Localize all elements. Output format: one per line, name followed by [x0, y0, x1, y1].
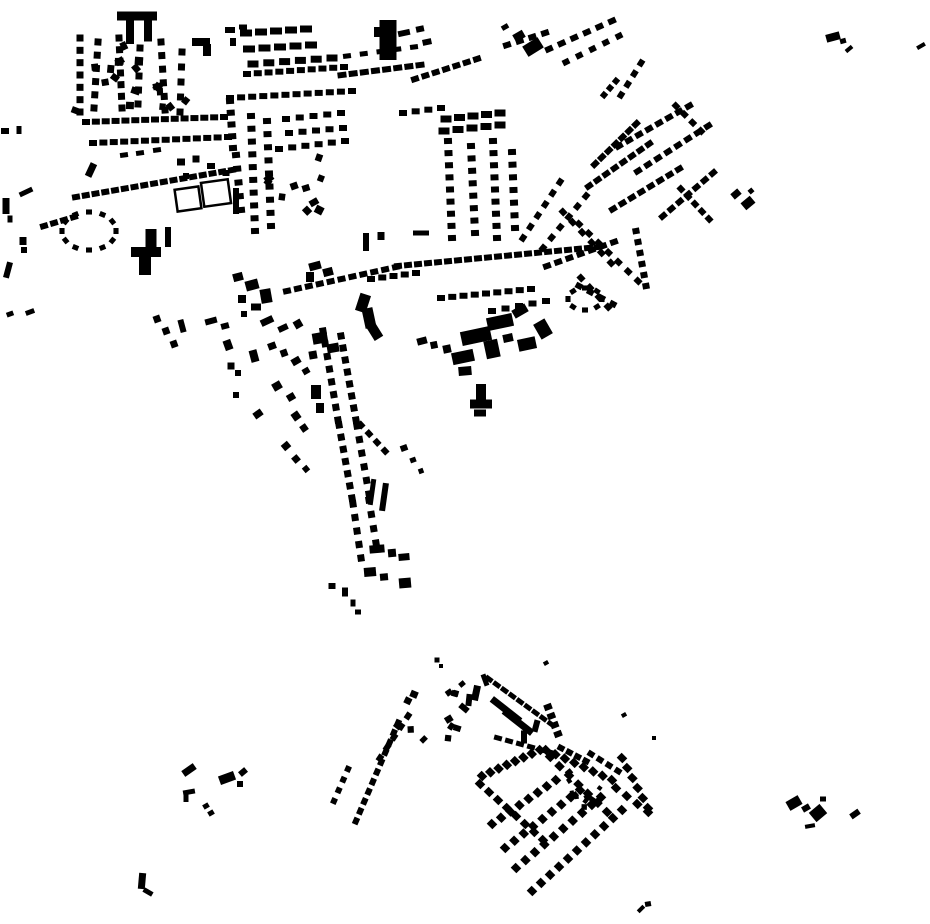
building	[210, 114, 218, 120]
building	[247, 126, 255, 132]
building	[118, 104, 125, 111]
building	[374, 27, 380, 37]
building	[511, 225, 519, 231]
building	[240, 30, 252, 37]
building	[265, 69, 273, 75]
building	[558, 207, 567, 216]
building	[220, 322, 229, 330]
building	[607, 17, 617, 26]
building	[704, 214, 713, 223]
building	[467, 155, 475, 161]
building	[259, 45, 271, 52]
building	[141, 117, 149, 123]
building	[532, 719, 541, 732]
building	[91, 91, 98, 98]
building	[91, 190, 100, 197]
building	[359, 51, 368, 57]
building	[102, 118, 110, 124]
building	[805, 823, 816, 829]
building	[356, 807, 364, 816]
building	[509, 174, 517, 180]
building	[304, 91, 312, 97]
building	[263, 131, 271, 137]
building	[367, 510, 375, 518]
building	[447, 223, 455, 229]
building	[342, 588, 348, 597]
building	[249, 177, 257, 183]
building	[112, 118, 120, 124]
building	[308, 66, 316, 72]
building	[232, 152, 241, 159]
building	[295, 57, 306, 64]
building	[134, 100, 141, 107]
building	[301, 184, 310, 192]
building	[337, 332, 345, 340]
building	[255, 29, 267, 36]
building	[588, 766, 599, 777]
building	[308, 350, 317, 359]
building	[540, 29, 549, 37]
building	[293, 319, 304, 330]
building	[604, 146, 614, 156]
building	[665, 170, 675, 179]
building	[299, 129, 307, 135]
building	[263, 118, 271, 124]
building	[849, 809, 861, 820]
building	[250, 202, 258, 208]
building	[413, 231, 429, 236]
building	[81, 192, 90, 199]
building	[666, 204, 676, 214]
building	[407, 726, 413, 733]
building	[249, 164, 257, 170]
building	[349, 500, 357, 508]
building	[328, 378, 336, 386]
building	[514, 251, 523, 258]
building	[378, 232, 385, 240]
building	[543, 660, 549, 666]
building	[492, 680, 501, 689]
building	[293, 91, 301, 97]
building	[248, 94, 256, 100]
building	[86, 209, 92, 214]
building	[606, 258, 615, 267]
building	[157, 38, 164, 45]
building	[360, 797, 368, 806]
building	[586, 750, 595, 759]
building	[250, 215, 258, 221]
building	[634, 238, 642, 245]
building	[228, 133, 236, 139]
building	[371, 67, 381, 74]
building	[599, 296, 604, 302]
building	[346, 482, 354, 490]
building	[439, 664, 443, 668]
building	[113, 228, 118, 234]
building	[576, 273, 585, 282]
building	[275, 69, 283, 75]
building	[531, 708, 540, 717]
building	[514, 800, 525, 811]
building	[490, 162, 498, 168]
building	[326, 278, 335, 286]
building	[482, 291, 490, 297]
building	[151, 137, 159, 143]
building	[281, 92, 289, 98]
building	[291, 454, 301, 464]
building	[412, 108, 420, 114]
building	[446, 198, 454, 204]
building	[365, 496, 373, 504]
building	[318, 66, 326, 72]
building	[637, 905, 645, 913]
building	[363, 476, 371, 484]
building	[8, 216, 13, 223]
building	[441, 65, 450, 73]
building	[470, 205, 478, 211]
building	[339, 125, 347, 131]
building	[235, 370, 241, 376]
building	[624, 126, 634, 136]
building	[267, 341, 277, 350]
building	[410, 75, 419, 83]
building	[414, 261, 423, 268]
building	[326, 126, 334, 132]
building	[700, 175, 710, 185]
building	[820, 797, 826, 802]
building	[502, 333, 513, 343]
building	[285, 27, 297, 34]
building	[248, 151, 256, 157]
building	[170, 340, 179, 349]
building	[348, 392, 356, 400]
building	[115, 34, 122, 41]
building	[233, 392, 239, 398]
building	[627, 193, 637, 202]
building	[617, 805, 628, 816]
building	[421, 72, 430, 80]
building	[315, 280, 324, 288]
building	[444, 150, 452, 156]
building	[471, 230, 479, 236]
building	[101, 78, 109, 86]
building	[615, 32, 624, 40]
building	[581, 837, 592, 848]
building	[323, 352, 331, 360]
building	[404, 711, 413, 720]
building	[264, 157, 272, 163]
building	[254, 70, 262, 76]
building	[234, 179, 243, 186]
building	[94, 38, 101, 45]
building	[442, 344, 451, 353]
building	[464, 256, 473, 263]
building	[636, 187, 646, 196]
building	[458, 366, 472, 376]
building	[399, 577, 412, 588]
building	[488, 308, 496, 314]
building	[801, 803, 811, 812]
building	[135, 72, 142, 79]
building	[321, 340, 329, 348]
building	[614, 257, 623, 266]
building	[281, 441, 292, 452]
building	[565, 296, 570, 302]
building	[136, 150, 145, 156]
building	[109, 237, 117, 245]
building	[99, 244, 106, 251]
building	[631, 119, 641, 129]
building	[358, 449, 366, 457]
building	[332, 403, 340, 411]
building	[636, 249, 644, 256]
building	[916, 42, 926, 50]
building	[487, 819, 498, 830]
building	[553, 730, 563, 738]
building	[136, 44, 143, 51]
building	[241, 311, 247, 317]
building	[533, 211, 542, 220]
building	[91, 63, 99, 70]
building	[367, 276, 375, 282]
building	[557, 744, 566, 753]
building	[329, 583, 336, 589]
building	[230, 38, 236, 46]
building	[489, 150, 497, 156]
building	[239, 25, 247, 30]
building	[645, 901, 652, 907]
building	[676, 184, 685, 193]
building	[509, 187, 517, 193]
building	[339, 445, 347, 453]
building	[252, 409, 263, 420]
building	[296, 115, 304, 121]
building	[741, 196, 756, 211]
building	[398, 29, 411, 37]
building	[537, 814, 548, 825]
building	[178, 48, 185, 55]
building	[203, 44, 211, 56]
building	[545, 869, 556, 880]
building	[491, 186, 499, 192]
building	[77, 84, 84, 91]
building	[264, 144, 272, 150]
building	[146, 229, 157, 249]
building	[369, 777, 377, 786]
building	[364, 567, 377, 577]
building	[282, 287, 291, 295]
building	[77, 47, 84, 54]
building	[409, 457, 416, 464]
building	[305, 42, 317, 49]
building	[551, 775, 562, 786]
building	[343, 368, 351, 376]
building	[617, 199, 627, 208]
building	[444, 258, 453, 265]
building	[462, 58, 471, 66]
building	[581, 191, 590, 200]
building	[153, 147, 162, 153]
building	[364, 787, 372, 796]
building	[238, 295, 246, 303]
building	[290, 43, 302, 50]
building	[489, 138, 497, 144]
building	[126, 18, 134, 44]
building	[220, 114, 228, 120]
building	[444, 138, 452, 144]
building	[388, 549, 397, 558]
building	[285, 130, 293, 136]
building	[785, 795, 802, 811]
building	[182, 136, 190, 142]
building	[270, 92, 278, 98]
building	[359, 270, 368, 278]
building	[177, 78, 184, 85]
building	[412, 270, 420, 276]
building	[144, 19, 152, 42]
building	[203, 135, 211, 141]
building	[299, 423, 309, 433]
building	[190, 115, 198, 121]
building	[301, 143, 309, 149]
building	[640, 271, 648, 278]
building	[544, 45, 554, 54]
building	[99, 211, 106, 218]
building	[495, 122, 506, 129]
building	[348, 88, 356, 94]
building	[353, 527, 361, 535]
building	[77, 35, 84, 42]
building	[445, 162, 453, 168]
building	[198, 171, 207, 178]
building	[189, 173, 198, 180]
building	[72, 244, 79, 251]
building	[708, 168, 718, 178]
building	[458, 680, 466, 688]
building	[202, 802, 210, 809]
building	[505, 288, 513, 294]
building	[6, 310, 14, 317]
building	[72, 193, 81, 200]
building	[575, 51, 584, 59]
building	[574, 794, 579, 800]
map-canvas	[0, 0, 930, 924]
building	[424, 107, 432, 113]
building	[360, 463, 368, 471]
building	[227, 110, 235, 116]
building	[481, 111, 492, 118]
building	[120, 152, 129, 158]
building	[613, 767, 622, 776]
building	[325, 365, 333, 373]
building	[293, 285, 302, 293]
building	[315, 90, 323, 96]
building	[373, 768, 381, 777]
building	[401, 272, 409, 278]
building	[635, 145, 645, 155]
building	[809, 804, 827, 822]
building	[544, 248, 553, 255]
building	[398, 553, 410, 561]
building	[259, 288, 272, 304]
building	[608, 204, 618, 213]
building	[92, 119, 100, 125]
building	[610, 163, 620, 173]
building	[547, 233, 556, 242]
building	[92, 78, 99, 85]
building	[415, 61, 425, 68]
building	[418, 468, 424, 474]
building	[3, 261, 13, 278]
building	[393, 64, 403, 71]
building	[355, 436, 363, 444]
building	[335, 421, 343, 429]
building	[569, 303, 577, 311]
building	[286, 392, 296, 402]
building	[492, 223, 500, 229]
building	[484, 787, 495, 798]
building	[622, 763, 633, 774]
building	[501, 23, 510, 31]
building	[317, 174, 325, 182]
building	[623, 80, 632, 89]
building	[304, 282, 313, 290]
building	[454, 114, 465, 121]
building	[643, 160, 653, 169]
building	[378, 275, 386, 281]
building	[350, 404, 358, 412]
building	[527, 286, 535, 292]
building	[590, 159, 600, 169]
building	[690, 199, 699, 208]
building	[475, 779, 486, 790]
building	[244, 278, 259, 291]
building	[691, 182, 701, 192]
building	[437, 295, 445, 301]
building	[409, 690, 419, 699]
building	[348, 273, 357, 281]
building	[238, 767, 248, 777]
building	[131, 117, 139, 123]
building	[126, 102, 134, 109]
building	[469, 193, 477, 199]
building	[266, 210, 274, 216]
building	[483, 339, 500, 360]
building	[609, 238, 619, 246]
building	[214, 134, 222, 140]
building	[107, 65, 115, 73]
building	[642, 282, 650, 289]
building	[250, 190, 258, 196]
building	[355, 541, 363, 549]
building	[322, 267, 334, 277]
building	[279, 58, 290, 65]
building	[595, 755, 604, 764]
building	[508, 692, 517, 701]
building	[277, 323, 289, 333]
building	[617, 90, 626, 99]
building	[341, 138, 349, 144]
building	[394, 263, 403, 270]
building	[688, 118, 697, 127]
building	[1, 128, 9, 134]
building	[486, 313, 514, 331]
building	[542, 298, 550, 304]
building	[448, 294, 456, 300]
building	[606, 84, 614, 92]
building	[471, 292, 479, 298]
building	[663, 147, 673, 156]
